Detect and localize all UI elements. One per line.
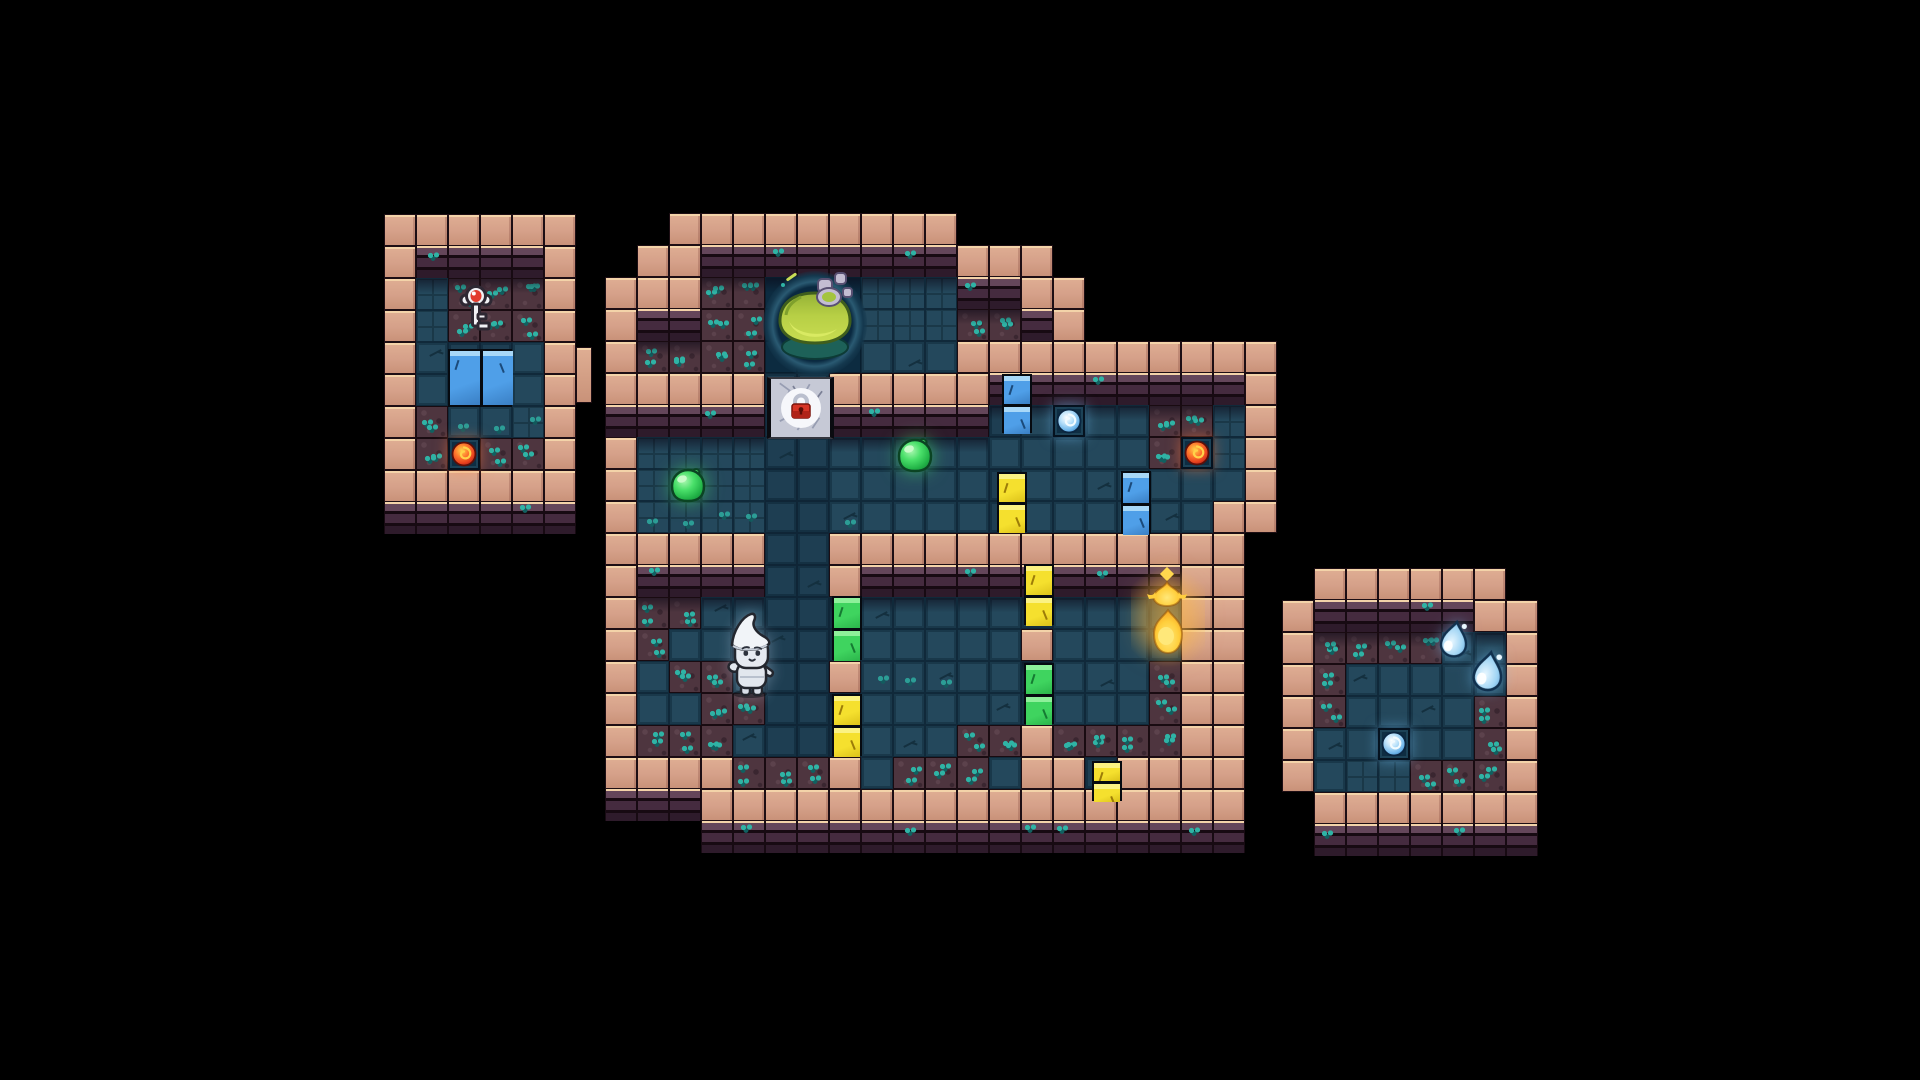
door-crack-decal — [839, 705, 844, 715]
door-panel — [1094, 781, 1120, 802]
tile-pink-wall — [1245, 469, 1277, 501]
moss-decal — [1424, 781, 1438, 790]
tile-floor — [1314, 760, 1346, 792]
tile-dirt — [701, 277, 733, 309]
west-room-blue-door[interactable] — [448, 349, 512, 407]
tile-pink-wall — [1245, 373, 1277, 405]
moss-decal — [910, 766, 924, 775]
tile-brick-face — [893, 245, 925, 277]
tile-pink-wall — [1085, 533, 1117, 565]
yellow-door-a[interactable] — [997, 472, 1027, 532]
door-crack-decal — [839, 607, 844, 617]
tile-floor — [925, 693, 957, 725]
tile-floor — [829, 469, 861, 501]
moss-decal — [707, 741, 721, 750]
tile-floor — [1085, 405, 1117, 437]
tile-pink-wall — [637, 533, 669, 565]
tile-floor-small — [512, 406, 544, 438]
tile-floor — [893, 661, 925, 693]
tile-floor — [861, 661, 893, 693]
tile-pink-wall — [605, 277, 637, 309]
yellow-door-b[interactable] — [1024, 564, 1054, 625]
tile-pink-wall — [1181, 341, 1213, 373]
moss-decal — [430, 453, 444, 462]
tile-pink-wall — [893, 373, 925, 405]
moss-decal — [1384, 640, 1398, 649]
tile-floor — [861, 437, 893, 469]
moss-decal — [904, 677, 918, 686]
tile-dirt — [733, 757, 765, 789]
door-panel — [1026, 595, 1052, 627]
tile-brick-face — [861, 405, 893, 437]
tile-brick-face — [669, 565, 701, 597]
tile-floor — [893, 693, 925, 725]
door-crack-decal — [1015, 517, 1021, 527]
tile-dirt — [701, 309, 733, 341]
door-panel — [834, 598, 860, 628]
tile-floor — [669, 693, 701, 725]
tile-brick-face — [605, 789, 637, 821]
tile-pink-wall — [669, 277, 701, 309]
moss-decal — [844, 519, 858, 528]
tile-pink-wall — [1181, 725, 1213, 757]
tile-floor — [1442, 728, 1474, 760]
crack-decal — [779, 451, 791, 459]
tile-pink-wall — [1314, 792, 1346, 824]
tile-pink-wall — [669, 757, 701, 789]
tile-floor-dark — [765, 501, 797, 533]
moss-decal — [1121, 736, 1135, 745]
tile-pink-wall — [637, 757, 669, 789]
tile-floor-dark — [797, 629, 829, 661]
tile-brick-face — [701, 821, 733, 853]
tile-pink-wall — [1213, 533, 1245, 565]
tile-pink-wall — [1053, 789, 1085, 821]
moss-decal — [1326, 646, 1340, 655]
tile-brick-face — [765, 821, 797, 853]
moss-decal — [809, 775, 823, 784]
tile-floor — [989, 693, 1021, 725]
door-crack-decal — [455, 360, 460, 370]
moss-decal — [1158, 454, 1172, 463]
moss-decal — [1321, 830, 1335, 839]
tile-floor — [1085, 661, 1117, 693]
tile-pink-wall — [480, 214, 512, 246]
tile-brick-face — [1053, 565, 1085, 597]
tile-brick-face — [448, 502, 480, 534]
tile-pink-wall — [1213, 597, 1245, 629]
tile-dirt — [1474, 760, 1506, 792]
blue-orb-sprite — [1055, 407, 1083, 435]
moss-decal — [1163, 420, 1177, 429]
tile-floor — [893, 341, 925, 373]
moss-decal — [1155, 453, 1169, 462]
tile-pink-wall — [1474, 792, 1506, 824]
tile-pink-wall — [605, 373, 637, 405]
tile-pink-wall — [1282, 632, 1314, 664]
tile-pink-wall — [1506, 728, 1538, 760]
crack-decal — [843, 512, 855, 520]
tile-pink-wall — [797, 789, 829, 821]
tile-floor — [1117, 405, 1149, 437]
tile-dirt — [1378, 632, 1410, 664]
moss-decal — [750, 316, 764, 325]
tile-brick-face — [669, 405, 701, 437]
moss-decal — [1422, 637, 1436, 646]
moss-decal — [682, 520, 696, 529]
tile-pink-wall — [1245, 341, 1277, 373]
moss-decal — [648, 567, 662, 576]
tile-floor — [1021, 437, 1053, 469]
tile-dirt — [765, 757, 797, 789]
tile-brick-face — [1213, 821, 1245, 853]
tile-pink-wall — [957, 341, 989, 373]
green-slime-east[interactable] — [893, 436, 937, 476]
yellow-door-c[interactable] — [832, 694, 862, 756]
tile-pink-wall — [605, 341, 637, 373]
tile-pink-wall — [925, 789, 957, 821]
crack-decal — [875, 611, 887, 619]
tile-floor-small — [1213, 405, 1245, 437]
tile-pink-wall — [1442, 568, 1474, 600]
moss-decal — [1096, 570, 1110, 579]
tile-floor — [1410, 696, 1442, 728]
tile-dirt — [733, 341, 765, 373]
tile-brick-face — [925, 245, 957, 277]
moss-decal — [1421, 602, 1435, 611]
tile-brick-face — [893, 565, 925, 597]
tile-pink-wall — [1378, 792, 1410, 824]
slime-sprite — [666, 466, 710, 506]
tile-floor — [893, 501, 925, 533]
red-padlock-icon — [781, 388, 821, 428]
tile-pink-wall — [512, 470, 544, 502]
tile-floor — [1117, 437, 1149, 469]
tile-dirt — [669, 725, 701, 757]
tile-pink-wall — [544, 438, 576, 470]
moss-decal — [1487, 741, 1501, 750]
tile-pink-wall — [1410, 568, 1442, 600]
tile-floor — [1442, 696, 1474, 728]
door-panel — [834, 725, 860, 757]
moss-decal — [1352, 651, 1366, 660]
tile-floor — [957, 661, 989, 693]
tile-pink-wall — [605, 437, 637, 469]
tile-dirt — [416, 438, 448, 470]
tile-brick-face — [1474, 824, 1506, 856]
tile-pink-wall — [861, 533, 893, 565]
tile-floor — [861, 469, 893, 501]
tile-brick-face — [1149, 821, 1181, 853]
tile-dirt — [1149, 725, 1181, 757]
tile-pink-wall — [861, 789, 893, 821]
moss-decal — [1163, 679, 1177, 688]
tile-brick-face — [989, 821, 1021, 853]
door-panel — [1026, 694, 1052, 726]
tile-brick-face — [1149, 373, 1181, 405]
moss-decal — [705, 289, 719, 298]
tile-dirt — [512, 438, 544, 470]
tile-pink-wall — [1181, 693, 1213, 725]
tile-dirt — [989, 309, 1021, 341]
red-orb-main[interactable] — [1181, 437, 1213, 469]
blue-orb-east-room[interactable] — [1378, 728, 1410, 760]
tile-dirt — [701, 725, 733, 757]
moss-decal — [940, 679, 954, 688]
tile-brick-face — [384, 502, 416, 534]
tile-brick-face — [989, 565, 1021, 597]
tile-floor — [1181, 469, 1213, 501]
tile-pink-wall — [1346, 792, 1378, 824]
tile-dirt — [637, 629, 669, 661]
tile-floor — [1181, 501, 1213, 533]
tile-floor-small — [925, 277, 957, 309]
tile-pink-wall — [512, 214, 544, 246]
yellow-door-d[interactable] — [1092, 761, 1122, 801]
crack-decal — [742, 733, 754, 741]
tile-pink-wall — [1245, 405, 1277, 437]
tile-dirt — [416, 406, 448, 438]
tile-pink-wall — [1021, 725, 1053, 757]
tile-pink-wall — [925, 373, 957, 405]
moss-decal — [718, 511, 732, 520]
tile-brick-face — [1346, 824, 1378, 856]
moss-decal — [426, 424, 440, 433]
tile-dirt — [989, 725, 1021, 757]
tile-floor — [733, 725, 765, 757]
tile-pink-wall — [384, 246, 416, 278]
moss-decal — [939, 763, 953, 772]
tile-pink-wall — [544, 342, 576, 374]
moss-decal — [779, 771, 793, 780]
tile-floor — [1378, 664, 1410, 696]
tile-dirt — [733, 309, 765, 341]
water-droplet-sprite — [1464, 645, 1513, 698]
moss-decal — [1322, 672, 1336, 681]
moss-decal — [964, 568, 978, 577]
moss-decal — [1093, 734, 1107, 743]
tile-pink-wall — [1506, 792, 1538, 824]
tile-floor-dark — [797, 597, 829, 629]
tile-floor-small — [1346, 760, 1378, 792]
tile-floor — [1085, 437, 1117, 469]
tile-dirt — [669, 661, 701, 693]
tile-floor — [829, 501, 861, 533]
tile-pink-wall — [605, 757, 637, 789]
door-crack-decal — [1004, 483, 1009, 493]
tile-brick-face — [669, 309, 701, 341]
tile-floor — [925, 597, 957, 629]
player-character[interactable] — [720, 611, 782, 699]
moss-decal — [681, 745, 695, 754]
tile-brick-face — [733, 565, 765, 597]
moss-decal — [1092, 376, 1106, 385]
tile-brick-face — [1346, 600, 1378, 632]
tile-dirt — [1085, 725, 1117, 757]
tile-brick-face — [701, 245, 733, 277]
moss-decal — [780, 778, 794, 787]
tile-pink-wall — [1053, 533, 1085, 565]
tile-pink-wall — [669, 373, 701, 405]
tile-pink-wall — [1149, 789, 1181, 821]
moss-decal — [712, 285, 726, 294]
tile-brick-face — [1213, 373, 1245, 405]
tile-floor — [925, 661, 957, 693]
moss-decal — [421, 419, 435, 428]
tile-pink-wall — [957, 789, 989, 821]
cauldron-pool[interactable] — [763, 271, 867, 377]
tile-brick-face — [1085, 565, 1117, 597]
tile-pink-wall — [733, 533, 765, 565]
dungeon-map-scene[interactable] — [0, 0, 1920, 1080]
moss-decal — [520, 317, 534, 326]
moss-decal — [963, 732, 977, 741]
blue-door-a[interactable] — [1002, 374, 1032, 433]
tile-brick-face — [957, 821, 989, 853]
tile-brick-face — [637, 789, 669, 821]
moss-decal — [528, 283, 542, 292]
tile-pink-wall — [669, 213, 701, 245]
moss-decal — [904, 250, 918, 259]
crack-decal — [1097, 482, 1109, 490]
moss-decal — [519, 504, 533, 513]
golden-flame[interactable] — [1137, 566, 1199, 670]
tile-pink-wall — [1053, 309, 1085, 341]
door-crack-decal — [1099, 772, 1104, 781]
tile-brick-face — [1085, 373, 1117, 405]
tile-dirt — [637, 341, 669, 373]
locked-stone-door[interactable] — [767, 377, 834, 439]
tile-pink-wall — [1245, 501, 1277, 533]
green-slime-west[interactable] — [666, 466, 710, 506]
tile-floor-small — [1378, 760, 1410, 792]
moss-decal — [496, 286, 510, 295]
tile-floor-small — [733, 437, 765, 469]
tile-floor — [861, 629, 893, 661]
tile-floor-dark — [765, 565, 797, 597]
moss-decal — [427, 252, 441, 261]
west-room-red-orb[interactable] — [448, 438, 480, 470]
moss-decal — [644, 359, 658, 368]
blue-door-b[interactable] — [1121, 471, 1151, 534]
tile-dirt — [669, 597, 701, 629]
tile-floor — [1085, 501, 1117, 533]
tile-pink-wall — [1506, 664, 1538, 696]
tile-dirt — [1053, 725, 1085, 757]
tile-pink-wall — [1282, 760, 1314, 792]
tile-pink-wall — [1506, 600, 1538, 632]
tile-brick-face — [544, 502, 576, 534]
moss-decal — [1157, 422, 1171, 431]
tile-floor-small — [637, 469, 669, 501]
moss-decal — [1001, 321, 1015, 330]
moss-decal — [1188, 827, 1202, 836]
tile-floor-dark — [765, 437, 797, 469]
tile-brick-face — [1442, 824, 1474, 856]
tile-brick-face — [1378, 600, 1410, 632]
blue-orb-main[interactable] — [1053, 405, 1085, 437]
tile-floor — [957, 693, 989, 725]
moss-decal — [1320, 703, 1334, 712]
door-panel — [999, 474, 1025, 502]
tile-brick-face — [733, 245, 765, 277]
moss-decal — [704, 410, 718, 419]
tile-pink-wall — [1474, 600, 1506, 632]
moss-decal — [744, 705, 758, 714]
water-droplet-large[interactable] — [1464, 645, 1513, 698]
tile-pink-wall — [384, 342, 416, 374]
tile-floor-small — [637, 437, 669, 469]
tile-pink-wall — [701, 533, 733, 565]
tile-brick-face — [605, 405, 637, 437]
tile-pink-wall — [1053, 277, 1085, 309]
crack-decal — [1165, 513, 1177, 521]
tile-floor-dark — [797, 469, 829, 501]
tile-floor — [1053, 437, 1085, 469]
tile-pink-wall — [829, 213, 861, 245]
moss-decal — [457, 423, 471, 432]
tile-brick-face — [733, 405, 765, 437]
moss-decal — [525, 283, 539, 292]
tile-floor — [1117, 693, 1149, 725]
tile-dirt — [1474, 696, 1506, 728]
west-room-wall-buttress — [576, 347, 592, 403]
moss-decal — [745, 350, 759, 359]
tile-floor — [829, 437, 861, 469]
tile-dirt — [957, 725, 989, 757]
tile-pink-wall — [544, 246, 576, 278]
moss-decal — [1002, 740, 1016, 749]
tile-floor — [637, 693, 669, 725]
tile-pink-wall — [1442, 792, 1474, 824]
tile-floor — [512, 342, 544, 374]
moss-decal — [517, 444, 531, 453]
tile-floor — [957, 437, 989, 469]
moss-decal — [740, 824, 754, 833]
moss-decal — [1321, 680, 1335, 689]
moss-decal — [1453, 827, 1467, 836]
door-panel — [1094, 763, 1120, 781]
red-orb-sprite — [450, 440, 478, 468]
tile-pink-wall — [637, 245, 669, 277]
tile-pink-wall — [1021, 629, 1053, 661]
crack-decal — [1421, 705, 1433, 713]
tile-floor — [1410, 664, 1442, 696]
tile-dirt — [1181, 405, 1213, 437]
silver-key[interactable] — [456, 283, 496, 335]
green-door-a[interactable] — [832, 596, 862, 660]
moss-decal — [1330, 714, 1344, 723]
tile-floor — [1085, 469, 1117, 501]
tile-dirt — [893, 757, 925, 789]
moss-decal — [522, 451, 536, 460]
moss-decal — [999, 317, 1013, 326]
tile-pink-wall — [384, 310, 416, 342]
tile-dirt — [1149, 405, 1181, 437]
tile-floor — [1053, 597, 1085, 629]
moss-decal — [1056, 825, 1070, 834]
tile-pink-wall — [1021, 341, 1053, 373]
moss-decal — [709, 710, 723, 719]
tile-pink-wall — [957, 245, 989, 277]
tile-floor — [1346, 664, 1378, 696]
tile-pink-wall — [544, 406, 576, 438]
moss-decal — [904, 827, 918, 836]
green-door-b[interactable] — [1024, 663, 1054, 724]
tile-pink-wall — [989, 533, 1021, 565]
tile-pink-wall — [605, 693, 637, 725]
tile-pink-wall — [669, 533, 701, 565]
